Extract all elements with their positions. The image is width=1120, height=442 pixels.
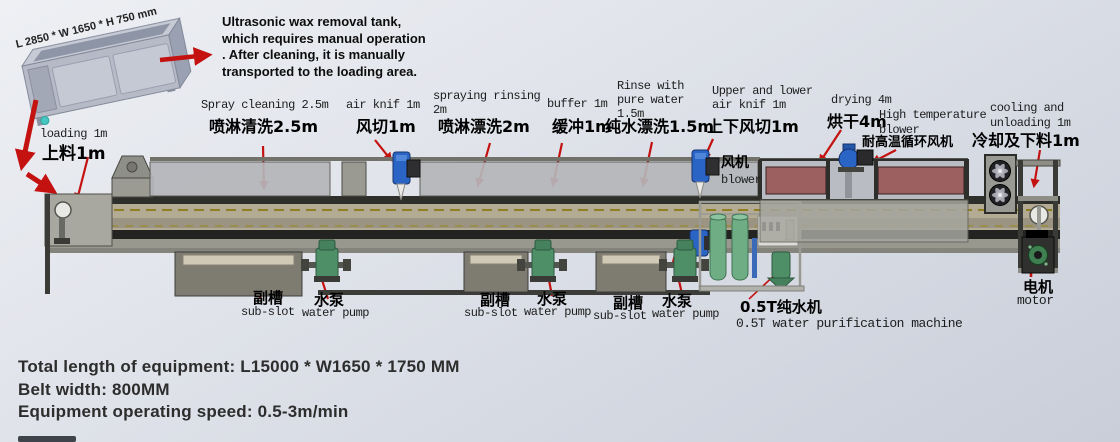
- label-water-pump-1-en: water pump: [302, 306, 369, 320]
- drying-section: [758, 144, 968, 242]
- label-blower: 风机 blower: [721, 141, 761, 187]
- page: { "tank": { "dimension_label": "L 2850 *…: [0, 0, 1120, 442]
- label-spray-cleaning-zh: 喷淋清洗2.5m: [209, 118, 318, 135]
- label-buffer-en: buffer 1m: [547, 97, 607, 111]
- label-blower-zh: 风机: [721, 155, 749, 171]
- label-drying-en: drying 4m: [831, 93, 891, 107]
- spec-speed: Equipment operating speed: 0.5-3m/min: [18, 405, 348, 419]
- label-purifier-zh: 0.5T纯水机: [740, 299, 822, 315]
- bottom-edge-artifact: [18, 436, 76, 442]
- cooling-fan-unit: [985, 155, 1016, 213]
- label-spray-cleaning-en: Spray cleaning 2.5m: [201, 98, 328, 112]
- unloading-section: [1016, 160, 1060, 273]
- label-pure-water-rinse-en: Rinse with pure water 1.5m: [617, 79, 684, 121]
- label-spraying-rinsing-en: spraying rinsing 2m: [433, 89, 540, 117]
- label-loading-zh: 上料1m: [42, 146, 106, 163]
- heater-panel-1: [766, 167, 826, 194]
- sub-tank-2: [464, 252, 528, 292]
- label-purifier-en: 0.5T water purification machine: [736, 317, 962, 331]
- label-sub-slot-1-en: sub-slot: [241, 305, 295, 319]
- label-air-knife-en: air knif 1m: [346, 98, 420, 112]
- spec-belt-width: Belt width: 800MM: [18, 383, 170, 397]
- label-upper-lower-air-knife-en: Upper and lower air knif 1m: [712, 84, 813, 112]
- sub-tank-3: [596, 252, 666, 292]
- label-water-pump-2-en: water pump: [524, 305, 591, 319]
- label-high-temp-blower-en: High temperature blower: [879, 108, 986, 138]
- label-pure-water-rinse-zh: 纯水漂洗1.5m: [605, 118, 714, 135]
- label-cooling-unloading-en: cooling and unloading 1m: [990, 101, 1070, 131]
- glass-enclosure: [150, 157, 760, 196]
- label-high-temp-blower-zh: 耐高温循环风机: [862, 136, 953, 150]
- label-drying-zh: 烘干4m: [827, 113, 887, 130]
- label-blower-en: blower: [721, 173, 761, 187]
- label-sub-slot-1-zh: 副槽: [253, 290, 283, 306]
- exhaust-hood: [112, 156, 153, 197]
- conveyor-line: [45, 144, 1060, 296]
- label-water-pump-3-en: water pump: [652, 307, 719, 321]
- label-buffer-zh: 缓冲1m: [552, 118, 612, 135]
- label-motor-en: motor: [1017, 294, 1054, 308]
- label-sub-slot-2-en: sub-slot: [464, 306, 518, 320]
- heater-panel-2: [878, 167, 964, 194]
- label-cooling-unloading-zh: 冷却及下料1m: [972, 132, 1080, 149]
- label-loading-en: loading 1m: [40, 127, 107, 141]
- spec-total-length: Total length of equipment: L15000 * W165…: [18, 360, 460, 374]
- label-spraying-rinsing-zh: 喷淋漂洗2m: [438, 118, 530, 135]
- label-air-knife-zh: 风切1m: [356, 118, 416, 135]
- label-upper-lower-air-knife-zh: 上下风切1m: [707, 118, 799, 135]
- tank-note: Ultrasonic wax removal tank, which requi…: [222, 14, 432, 80]
- label-sub-slot-3-en: sub-slot: [593, 309, 647, 323]
- loading-section: [45, 194, 112, 294]
